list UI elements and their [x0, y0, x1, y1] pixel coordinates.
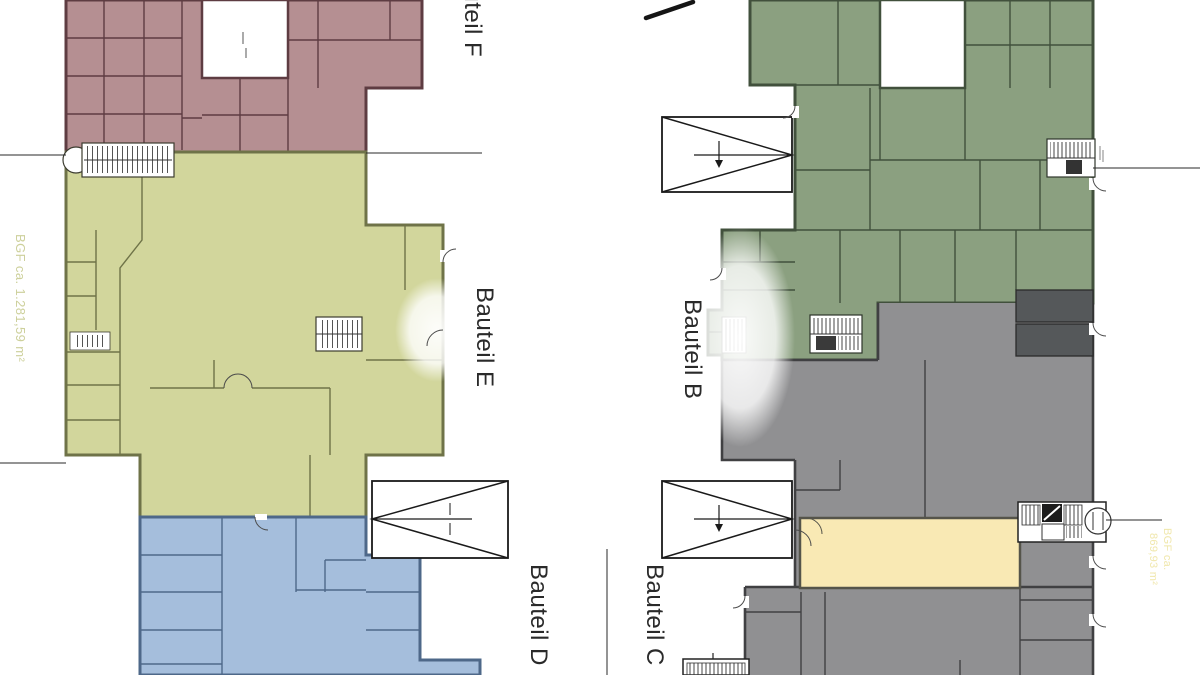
north-arrow-icon: [646, 2, 693, 18]
highlight-room: [800, 518, 1020, 588]
label-bgf-left: BGF ca. 1.281,59 m²: [13, 234, 28, 362]
label-bauteil-e: Bauteil E: [470, 287, 498, 388]
courtyard-right: [880, 0, 965, 88]
staircase-bottom-fragment: [683, 653, 749, 675]
staircase-b-topright: [1047, 139, 1095, 177]
floorplan-page: Bauteil F Bauteil E Bauteil B Bauteil D …: [0, 0, 1200, 675]
label-bgf-right-1: BGF ca.: [1161, 528, 1173, 570]
label-bauteil-d: Bauteil D: [524, 564, 552, 666]
floorplan-canvas: [0, 0, 1200, 675]
bauteil-e-region: [63, 143, 443, 517]
staircase-c-right: [1018, 502, 1111, 542]
ramp-symbol-topright: [662, 117, 792, 192]
label-bauteil-f: Bauteil F: [458, 0, 486, 57]
staircase-e-mid: [316, 317, 362, 351]
courtyard-left: [202, 0, 288, 78]
bauteil-f-region: [66, 0, 422, 152]
staircase-b-mid: [810, 315, 862, 353]
label-bgf-right-2: 869,93 m²: [1147, 533, 1159, 585]
ramp-symbol-bottomright: [662, 481, 792, 558]
staircase-e-top: [63, 143, 174, 177]
ramp-symbol-left: [372, 481, 508, 558]
label-bauteil-b: Bauteil B: [678, 299, 706, 400]
label-bauteil-c: Bauteil C: [640, 564, 668, 666]
white-fade-left: [395, 278, 479, 382]
